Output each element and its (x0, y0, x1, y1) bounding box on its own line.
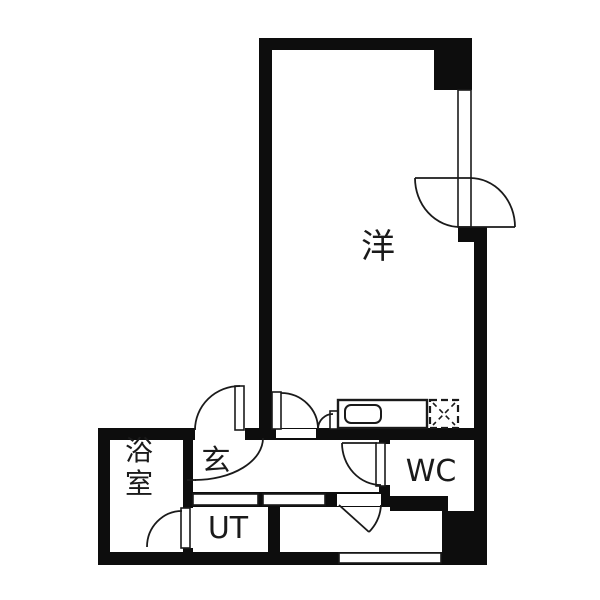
window-bottom-window (339, 553, 441, 563)
floorplan-page: 洋玄浴室UTWC (0, 0, 600, 600)
wall-right-step-block (458, 227, 487, 242)
wall-left-wall-main-room (259, 38, 272, 440)
wall-right-wall (474, 242, 487, 438)
opening-ut-partition-segment (193, 494, 258, 505)
kitchen-sink (345, 405, 381, 423)
floorplan-drawing: 洋玄浴室UTWC (0, 0, 600, 600)
room-label-utility: UT (208, 511, 249, 546)
opening-corridor-door-opening (276, 429, 316, 438)
room-label-western-room: 洋 (361, 227, 395, 267)
room-label-bathroom: 浴室 (125, 434, 153, 500)
door-leaf-entrance-door-leaf (235, 386, 244, 430)
wall-top-right-block (434, 38, 472, 90)
opening-bottom-room-door-opening (337, 494, 381, 506)
room-label-toilet: WC (406, 454, 457, 489)
door-leaf-wc-door-leaf (376, 443, 385, 486)
window-right-window (458, 90, 471, 227)
wall-wc-hinge-wall-top (379, 430, 390, 444)
wall-left-outer-wall (98, 428, 110, 565)
wall-wc-right-wall (474, 438, 487, 511)
door-leaf-corridor-door-leaf (272, 392, 281, 429)
wall-ut-right-wall (268, 507, 280, 552)
wall-bath-right-wall-low (183, 548, 193, 556)
wall-bath-right-wall (183, 438, 193, 508)
wall-wc-bottom-wall (390, 496, 448, 511)
room-label-entrance: 玄 (201, 443, 230, 477)
door-leaf-bath-door-leaf (181, 508, 190, 548)
wall-bottom-right-block (442, 511, 487, 565)
floorplan-background (0, 0, 600, 600)
opening-hall-partition-segment (263, 494, 325, 505)
